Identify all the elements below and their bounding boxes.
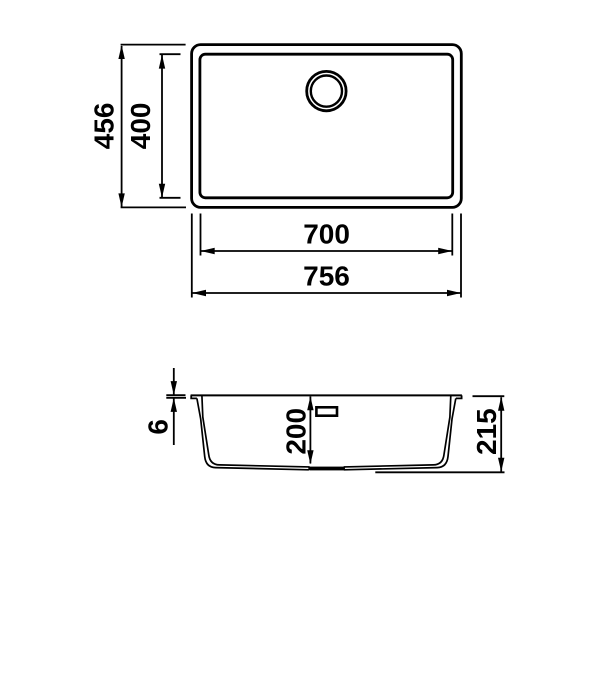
svg-text:6: 6 — [143, 419, 174, 435]
svg-text:215: 215 — [471, 408, 502, 455]
svg-text:400: 400 — [125, 102, 156, 149]
svg-text:700: 700 — [303, 219, 350, 250]
svg-text:756: 756 — [303, 261, 350, 292]
svg-text:200: 200 — [281, 408, 312, 455]
svg-text:456: 456 — [89, 102, 120, 149]
